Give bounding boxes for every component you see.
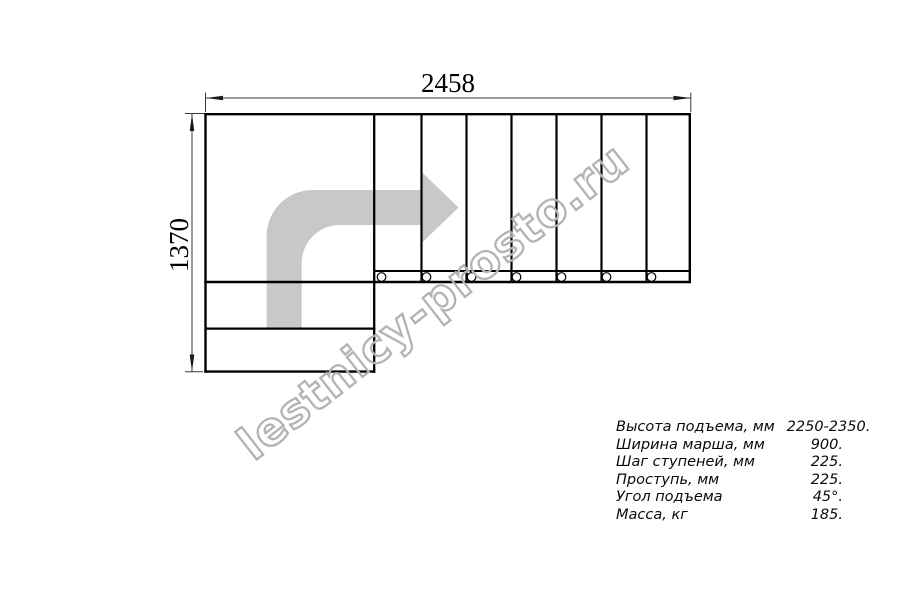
dim-arrowhead-left-icon [206, 96, 223, 101]
baluster-marker [377, 273, 386, 282]
baluster-marker [602, 273, 611, 282]
spec-row-flight-width: Ширина марша, мм 900. [616, 437, 843, 455]
spec-row-step-pitch: Шаг ступеней, мм 225. [616, 454, 843, 472]
spec-label: Шаг ступеней, мм [616, 454, 755, 472]
dim-arrowhead-down-icon [190, 355, 195, 372]
spec-row-mass: Масса, кг 185. [616, 507, 843, 525]
spec-value: 900. [811, 437, 843, 455]
spec-table: Высота подъема, мм 2250-2350. Ширина мар… [616, 419, 843, 525]
spec-label: Угол подъема [616, 489, 723, 507]
baluster-marker [512, 273, 521, 282]
spec-label: Ширина марша, мм [616, 437, 765, 455]
staircase-drawing-canvas: 2458 1370 lestnicy-prosto.ru Высота подъ… [0, 0, 900, 600]
dim-arrowhead-up-icon [190, 114, 195, 131]
width-dimension-value: 2458 [421, 68, 475, 98]
dim-arrowhead-right-icon [674, 96, 691, 101]
spec-row-tread: Проступь, мм 225. [616, 472, 843, 490]
spec-row-height: Высота подъема, мм 2250-2350. [616, 419, 843, 437]
spec-label: Высота подъема, мм [616, 419, 775, 437]
spec-row-angle: Угол подъема 45°. [616, 489, 843, 507]
spec-value: 225. [811, 472, 843, 490]
spec-value: 225. [811, 454, 843, 472]
baluster-marker [557, 273, 566, 282]
height-dimension-value: 1370 [164, 218, 194, 272]
spec-label: Проступь, мм [616, 472, 719, 490]
spec-value: 45°. [813, 489, 843, 507]
spec-label: Масса, кг [616, 507, 688, 525]
spec-value: 185. [811, 507, 843, 525]
baluster-marker [647, 273, 656, 282]
spec-value: 2250-2350. [787, 419, 871, 437]
